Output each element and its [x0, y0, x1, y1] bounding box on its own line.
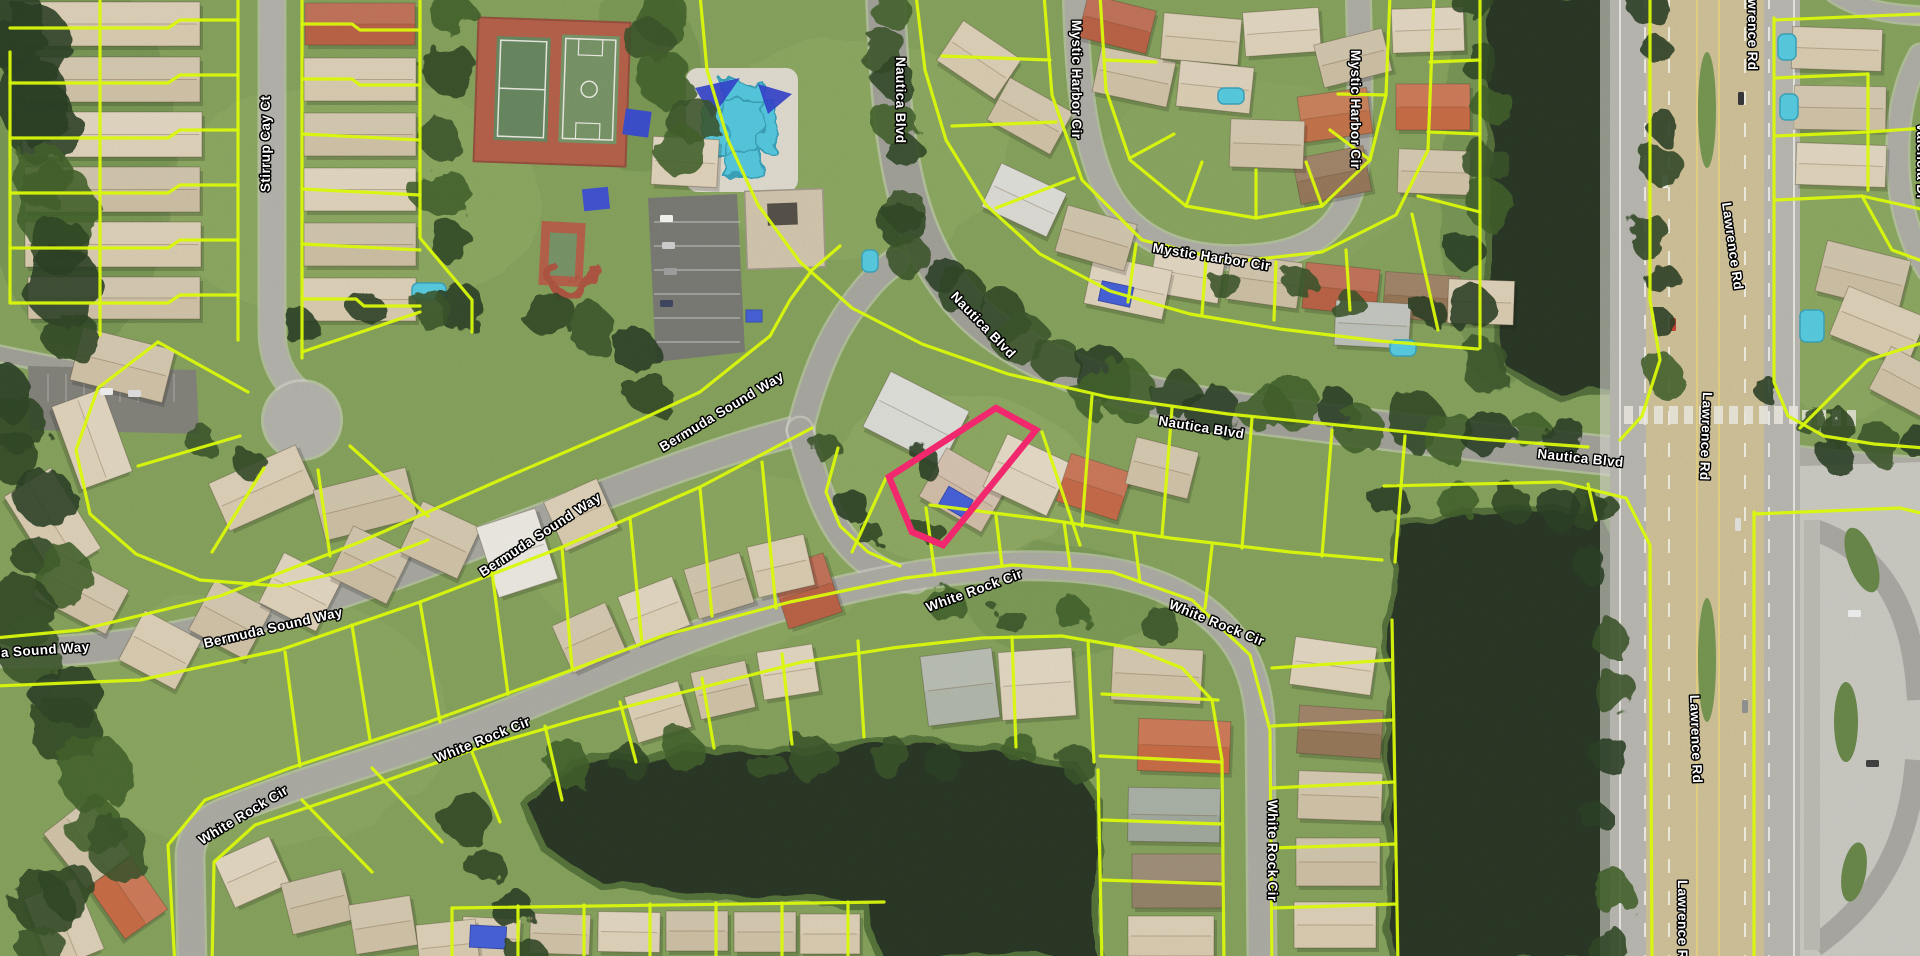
street-label-nautica-blvd: Nautica Blvd	[893, 57, 908, 144]
street-label-lawrence-rd: Lawrence Rd	[1697, 392, 1715, 481]
map-viewport[interactable]: Stirrup Cay Ct Nautica Blvd Nautica Blvd…	[0, 0, 1920, 956]
street-label-lawrence-rd: Lawrence Rd	[1687, 695, 1705, 784]
street-label-lawrence-rd: Lawrence Rd	[1675, 880, 1690, 956]
street-label-lawrence-rd: Lawrence Rd	[1745, 0, 1760, 70]
aerial-map[interactable]: Stirrup Cay Ct Nautica Blvd Nautica Blvd…	[0, 0, 1920, 956]
street-label-stirrup-cay-ct: Stirrup Cay Ct	[258, 96, 273, 192]
street-label-valencia-dr: Valencia Dr	[1914, 123, 1920, 201]
street-label-mystic-harbor-cir: Mystic Harbor Cir	[1348, 50, 1363, 170]
street-label-white-rock-cir: White Rock Cir	[1265, 800, 1280, 902]
street-label-mystic-harbor-cir: Mystic Harbor Cir	[1069, 20, 1084, 140]
